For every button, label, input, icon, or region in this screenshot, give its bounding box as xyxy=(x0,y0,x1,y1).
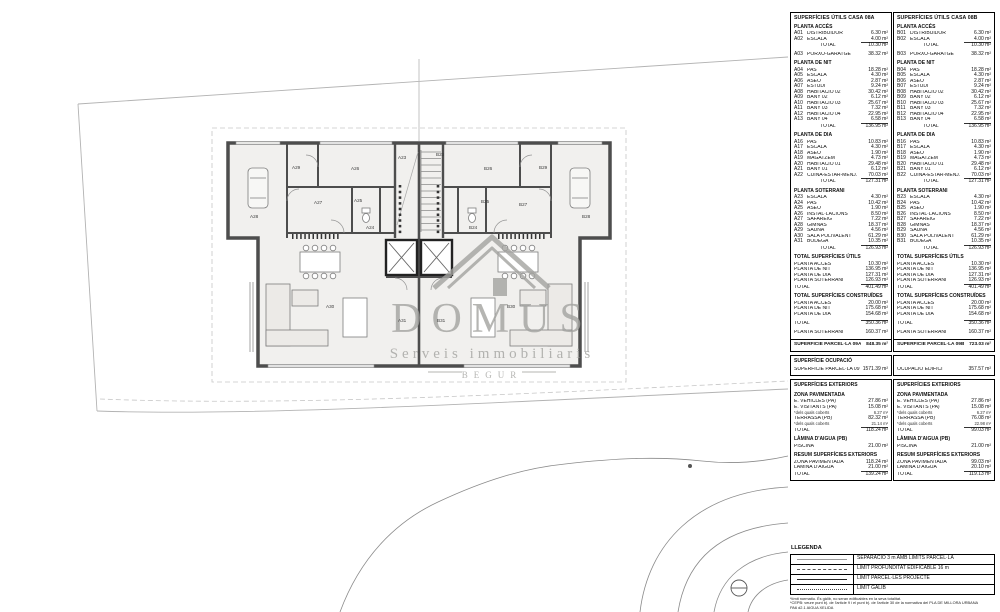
area-section-header: PLANTA DE DIA xyxy=(794,133,888,139)
area-section: PLANTA DE DIAA16PAS10.83 m²A17ESCALA4.30… xyxy=(794,133,888,185)
area-section-header: TOTAL SUPERFÍCIES CONSTRUÏDES xyxy=(794,294,888,300)
area-label: PLANTA DE DIA xyxy=(897,312,964,318)
exteriors-box: SUPERFÍCIES EXTERIORSZONA PAVIMENTADAE. … xyxy=(790,379,892,481)
parcel-area-row: SUPERFÍCIE PARCEL·LA 09B723.03 m² xyxy=(894,339,994,348)
area-label: TOTAL xyxy=(897,428,964,434)
area-row: TOTAL10.30 m² xyxy=(897,42,991,49)
legend-title: LLEGENDA xyxy=(791,546,995,552)
area-table-casa-08b: SUPERFÍCIES ÚTILS CASA 08BPLANTA ACCÉSB0… xyxy=(893,12,995,484)
parcel-value: 848.35 m² xyxy=(861,342,888,348)
area-section-header: PLANTA DE NIT xyxy=(794,61,888,67)
area-table-casa-08a: SUPERFÍCIES ÚTILS CASA 08APLANTA ACCÉSA0… xyxy=(790,12,892,484)
area-section-header: TOTAL SUPERFÍCIES ÚTILS xyxy=(794,255,888,261)
toilet-icon-right xyxy=(468,208,476,223)
area-row: TOTAL136.95 m² xyxy=(794,123,888,130)
area-table-title: SUPERFÍCIES ÚTILS CASA 08A xyxy=(794,16,888,22)
legend-item-label: LÍMIT GÀLIB xyxy=(854,586,886,592)
area-label: TOTAL xyxy=(794,285,861,291)
area-label: TOTAL xyxy=(897,472,964,478)
area-row: PLANTA SOTERRANI160.37 m² xyxy=(897,330,991,336)
area-section: TOTAL SUPERFÍCIES CONSTRUÏDESPLANTA ACCÉ… xyxy=(897,294,991,335)
area-section: TOTAL SUPERFÍCIES CONSTRUÏDESPLANTA ACCÉ… xyxy=(794,294,888,335)
area-row: TOTAL401.49 m² xyxy=(897,284,991,291)
garage-door-right xyxy=(558,142,602,145)
area-table-title: SUPERFÍCIES ÚTILS CASA 08B xyxy=(897,16,991,22)
area-label: ESCALA xyxy=(807,37,861,43)
area-section-header: PLANTA DE DIA xyxy=(897,133,991,139)
area-value: 119.13 m² xyxy=(964,471,991,478)
area-section-header: TOTAL SUPERFÍCIES CONSTRUÏDES xyxy=(897,294,991,300)
room-label: B28 xyxy=(582,214,590,219)
area-value: 160.37 m² xyxy=(964,330,991,336)
benchmark-icon xyxy=(731,580,747,596)
area-row: TOTAL10.30 m² xyxy=(794,42,888,49)
area-section: PLANTA DE NITA04PAS18.28 m²A05ESCALA4.30… xyxy=(794,61,888,129)
area-label: PISCINA xyxy=(897,444,964,450)
area-label: BANY 04 xyxy=(807,117,861,123)
area-label: BANY 04 xyxy=(910,117,964,123)
area-label: TOTAL xyxy=(897,285,964,291)
area-label: PLANTA SOTERRANI xyxy=(897,278,964,284)
parcel-area-row: SUPERFÍCIE PARCEL·LA 09A848.35 m² xyxy=(791,339,891,348)
plan-sheet: DOMUS Serveis immobiliaris BEGUR A29A26A… xyxy=(0,0,1000,612)
area-section: TOTAL SUPERFÍCIES ÚTILSPLANTA ACCÉS10.30… xyxy=(794,255,888,290)
area-value: 38.32 m² xyxy=(861,52,888,58)
area-label: SUPERFÍCIE PARCEL·LA 09 xyxy=(794,367,861,373)
room-label: B30 xyxy=(507,304,515,309)
room-code: B03 xyxy=(897,52,910,58)
area-row: TOTAL127.31 m² xyxy=(897,178,991,185)
exteriors-header: SUPERFÍCIES EXTERIORS xyxy=(897,383,991,389)
room-label: A23 xyxy=(398,155,406,160)
room-code: B22 xyxy=(897,173,910,179)
legend-line-sample-cell xyxy=(791,565,854,574)
legend-item-label: SEPARACIÓ 3 m AMB LÍMITS PARCEL·LA xyxy=(854,556,954,562)
area-label: PISCINA xyxy=(794,444,861,450)
room-code: A03 xyxy=(794,52,807,58)
parcel-value: 723.03 m² xyxy=(964,342,991,348)
parcel-label: SUPERFÍCIE PARCEL·LA 09B xyxy=(897,342,964,348)
watermark-title: DOMUS xyxy=(391,296,593,342)
area-value: 99.03 m² xyxy=(964,427,991,434)
terrain-contour-lines xyxy=(340,456,788,612)
area-row: TOTAL127.31 m² xyxy=(794,178,888,185)
area-value: 160.37 m² xyxy=(861,330,888,336)
area-value: 126.93 m² xyxy=(861,245,888,252)
area-label: PLANTA SOTERRANI xyxy=(794,278,861,284)
exteriors-subheader: RESUM SUPERFÍCIES EXTERIORS xyxy=(897,453,991,459)
area-label: PLANTA DE DIA xyxy=(794,312,861,318)
area-label: TOTAL xyxy=(897,321,964,327)
area-section: PLANTA SOTERRANIB23ESCALA4.30 m²B24PAS10… xyxy=(897,189,991,252)
legend-note-line: PA6 d2.1 AIGUA XELIDA xyxy=(790,606,995,611)
area-table-main-box: SUPERFÍCIES ÚTILS CASA 08APLANTA ACCÉSA0… xyxy=(790,12,892,352)
area-label: PORXO-GARATGE xyxy=(807,52,861,58)
area-row: TOTAL118.24 m² xyxy=(794,427,888,434)
car-icon-left xyxy=(248,168,268,208)
area-label: TOTAL xyxy=(807,246,861,252)
ocupacio-box: OCUPACIÓ EDIFICI357.57 m² xyxy=(893,355,995,377)
room-label: B24 xyxy=(469,225,477,230)
legend-table: SEPARACIÓ 3 m AMB LÍMITS PARCEL·LALÍMIT … xyxy=(790,554,995,595)
area-value: 127.31 m² xyxy=(861,178,888,185)
room-label: A26 xyxy=(351,166,359,171)
area-value: 10.30 m² xyxy=(861,42,888,49)
area-row: PLANTA SOTERRANI160.37 m² xyxy=(794,330,888,336)
area-label: PORXO-GARATGE xyxy=(910,52,964,58)
area-label: ESCALA xyxy=(910,37,964,43)
area-table-main-box: SUPERFÍCIES ÚTILS CASA 08BPLANTA ACCÉSB0… xyxy=(893,12,995,352)
legend-notes: *límit normatiu. És gàlib, no seran edif… xyxy=(790,597,995,612)
area-row: PISCINA21.00 m² xyxy=(897,444,991,450)
area-section: PLANTA ACCÉSA01DISTRIBUIDOR6.30 m²A02ESC… xyxy=(794,25,888,58)
area-row: TOTAL350.36 m² xyxy=(794,320,888,327)
area-label: TOTAL xyxy=(807,179,861,185)
room-label: B29 xyxy=(539,165,547,170)
room-label: A31 xyxy=(398,318,406,323)
legend-item-label: LÍMIT PARCEL·LES PROJECTE xyxy=(854,576,930,582)
area-value: 357.57 m² xyxy=(964,367,991,373)
survey-point-dot xyxy=(688,464,692,468)
area-row: SUPERFÍCIE PARCEL·LA 091571.39 m² xyxy=(794,367,888,373)
exteriors-header: SUPERFÍCIES EXTERIORS xyxy=(794,383,888,389)
area-section-header: TOTAL SUPERFÍCIES ÚTILS xyxy=(897,255,991,261)
area-label: BODEGA xyxy=(910,239,964,245)
area-label: TOTAL xyxy=(910,43,964,49)
area-value: 401.49 m² xyxy=(964,284,991,291)
area-value: 154.68 m² xyxy=(861,312,888,318)
car-icon-right xyxy=(570,168,590,208)
legend-block: LLEGENDA SEPARACIÓ 3 m AMB LÍMITS PARCEL… xyxy=(790,546,995,612)
exteriors-subheader: LÀMINA D'AIGUA (PB) xyxy=(794,437,888,443)
area-label: TOTAL xyxy=(807,43,861,49)
area-label: TOTAL xyxy=(794,321,861,327)
legend-line-sample xyxy=(797,559,847,560)
area-section-header: PLANTA DE NIT xyxy=(897,61,991,67)
area-row: TOTAL119.13 m² xyxy=(897,471,991,478)
room-label: A25 xyxy=(354,198,362,203)
parcel-label: SUPERFÍCIE PARCEL·LA 09A xyxy=(794,342,861,348)
area-value: 136.95 m² xyxy=(964,123,991,130)
area-label: PLANTA SOTERRANI xyxy=(794,330,861,336)
exteriors-box: SUPERFÍCIES EXTERIORSZONA PAVIMENTADAE. … xyxy=(893,379,995,481)
toilet-icon-left xyxy=(362,208,370,223)
area-section: PLANTA DE DIAB16PAS10.83 m²B17ESCALA4.30… xyxy=(897,133,991,185)
area-row: B03PORXO-GARATGE38.32 m² xyxy=(897,52,991,58)
area-section: TOTAL SUPERFÍCIES ÚTILSPLANTA ACCÉS10.30… xyxy=(897,255,991,290)
room-label: A30 xyxy=(326,304,334,309)
area-label: BODEGA xyxy=(807,239,861,245)
room-code: B31 xyxy=(897,239,910,245)
room-label: B31 xyxy=(437,318,445,323)
watermark-chimney xyxy=(493,278,507,296)
area-section: PLANTA SOTERRANIA23ESCALA4.30 m²A24PAS10… xyxy=(794,189,888,252)
legend-line-sample-cell xyxy=(791,575,854,584)
ocupacio-header xyxy=(897,359,991,365)
area-label: TOTAL xyxy=(794,428,861,434)
area-label: *dels quals coberts xyxy=(794,421,861,427)
area-value: 21.00 m² xyxy=(861,444,888,450)
room-label: B27 xyxy=(519,202,527,207)
garage-door-left xyxy=(236,142,280,145)
area-label: TOTAL xyxy=(910,124,964,130)
area-value: 136.95 m² xyxy=(861,123,888,130)
room-label: A27 xyxy=(314,200,322,205)
legend-row: LÍMIT PARCEL·LES PROJECTE xyxy=(791,574,994,584)
room-label: A28 xyxy=(250,214,258,219)
room-label: A29 xyxy=(292,165,300,170)
area-row: TOTAL136.95 m² xyxy=(897,123,991,130)
area-value: 350.36 m² xyxy=(861,320,888,327)
area-row: OCUPACIÓ EDIFICI357.57 m² xyxy=(897,367,991,373)
area-value: 350.36 m² xyxy=(964,320,991,327)
legend-line-sample xyxy=(797,579,847,580)
room-code: A02 xyxy=(794,37,807,43)
legend-line-sample xyxy=(797,569,847,570)
exteriors-subheader: RESUM SUPERFÍCIES EXTERIORS xyxy=(794,453,888,459)
legend-item-label: LÍMIT PROFUNDITAT EDIFICABLE 16 m xyxy=(854,566,949,572)
area-row: A03PORXO-GARATGE38.32 m² xyxy=(794,52,888,58)
room-label: B25 xyxy=(481,199,489,204)
area-section: PLANTA DE NITB04PAS18.28 m²B05ESCALA4.30… xyxy=(897,61,991,129)
room-code: A22 xyxy=(794,173,807,179)
area-row: TOTAL350.36 m² xyxy=(897,320,991,327)
area-row: PISCINA21.00 m² xyxy=(794,444,888,450)
ocupacio-box: SUPERFÍCIE OCUPACIÓSUPERFÍCIE PARCEL·LA … xyxy=(790,355,892,377)
area-label: LÀMINA D'AIGUA xyxy=(794,465,861,471)
area-value: 127.31 m² xyxy=(964,178,991,185)
legend-row: SEPARACIÓ 3 m AMB LÍMITS PARCEL·LA xyxy=(791,555,994,564)
area-label: TOTAL xyxy=(807,124,861,130)
area-label: OCUPACIÓ EDIFICI xyxy=(897,367,964,373)
watermark-city: BEGUR xyxy=(462,370,523,380)
room-code: A31 xyxy=(794,239,807,245)
area-row: TOTAL126.93 m² xyxy=(794,245,888,252)
watermark-subtitle: Serveis immobiliaris xyxy=(390,346,595,362)
legend-row: LÍMIT GÀLIB xyxy=(791,584,994,594)
legend-line-sample-cell xyxy=(791,555,854,564)
legend-row: LÍMIT PROFUNDITAT EDIFICABLE 16 m xyxy=(791,564,994,574)
area-value: 139.24 m² xyxy=(861,471,888,478)
area-row: TOTAL401.49 m² xyxy=(794,284,888,291)
room-code: B13 xyxy=(897,117,910,123)
area-label: PLANTA SOTERRANI xyxy=(897,330,964,336)
room-code: B02 xyxy=(897,37,910,43)
area-value: 1571.39 m² xyxy=(861,367,888,373)
area-label: *dels quals coberts xyxy=(897,421,964,427)
room-label: A24 xyxy=(366,225,374,230)
room-label: B23 xyxy=(436,152,444,157)
area-label: CUINA-ESTAR-MENJ. xyxy=(807,173,861,179)
exteriors-subheader: LÀMINA D'AIGUA (PB) xyxy=(897,437,991,443)
area-value: 126.93 m² xyxy=(964,245,991,252)
area-value: 154.68 m² xyxy=(964,312,991,318)
area-row: TOTAL99.03 m² xyxy=(897,427,991,434)
area-label: LÀMINA D'AIGUA xyxy=(897,465,964,471)
area-label: TOTAL xyxy=(794,472,861,478)
area-value: 10.30 m² xyxy=(964,42,991,49)
room-label: B26 xyxy=(484,166,492,171)
area-row: PLANTA DE DIA154.68 m² xyxy=(897,312,991,318)
area-value: 118.24 m² xyxy=(861,427,888,434)
area-value: 21.00 m² xyxy=(964,444,991,450)
area-row: TOTAL139.24 m² xyxy=(794,471,888,478)
area-section: PLANTA ACCÉSB01DISTRIBUIDOR6.30 m²B02ESC… xyxy=(897,25,991,58)
area-label: TOTAL xyxy=(910,246,964,252)
area-value: 401.49 m² xyxy=(861,284,888,291)
ocupacio-header: SUPERFÍCIE OCUPACIÓ xyxy=(794,359,888,365)
area-label: TOTAL xyxy=(910,179,964,185)
legend-line-sample-cell xyxy=(791,585,854,594)
area-value: 38.32 m² xyxy=(964,52,991,58)
room-code: A13 xyxy=(794,117,807,123)
kitchen-island-left xyxy=(343,298,367,337)
area-row: PLANTA DE DIA154.68 m² xyxy=(794,312,888,318)
area-label: CUINA-ESTAR-MENJ. xyxy=(910,173,964,179)
legend-line-sample xyxy=(797,589,847,590)
area-row: TOTAL126.93 m² xyxy=(897,245,991,252)
